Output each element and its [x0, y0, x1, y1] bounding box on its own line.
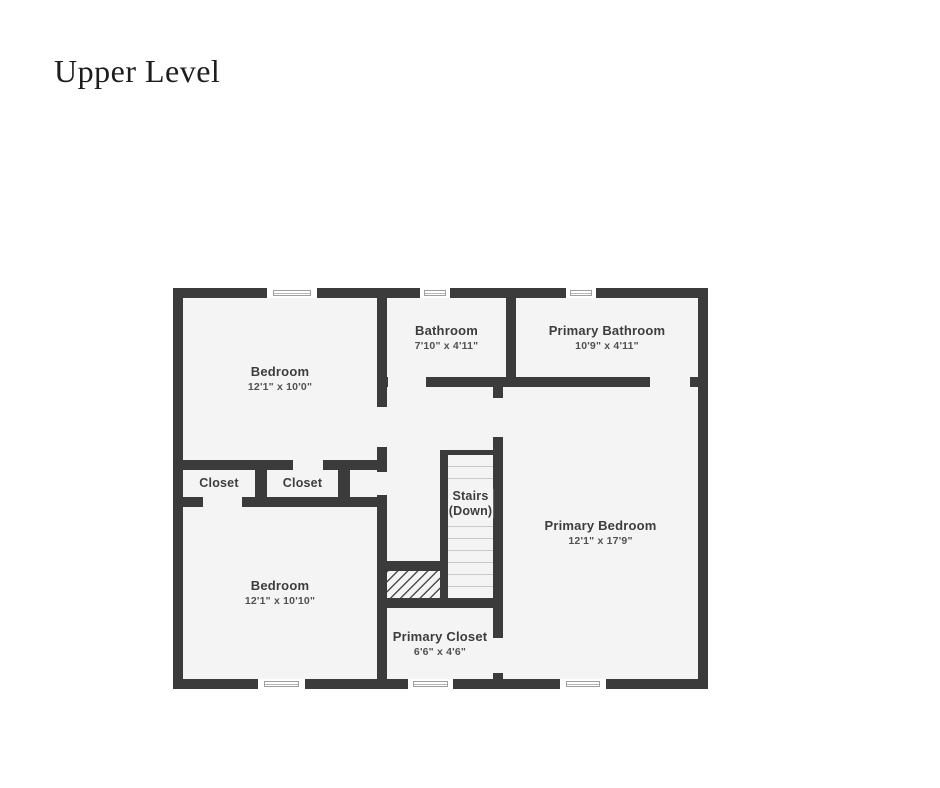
wall-outer-left — [173, 288, 183, 689]
room-label: Bedroom — [251, 364, 309, 379]
room-primary-bathroom: Primary Bathroom 10'9" x 4'11" — [516, 298, 698, 377]
under-stair-hatch — [387, 571, 440, 598]
wall-primary-closet-top — [377, 598, 503, 608]
stairs-label: Stairs (Down) — [448, 489, 494, 518]
window-top-bedroom — [267, 288, 317, 298]
room-label: Bedroom — [251, 578, 309, 593]
window-glass — [264, 681, 300, 687]
window-primary-bathroom — [566, 288, 596, 298]
room-dims: 12'1" x 17'9" — [568, 534, 632, 548]
window-bottom-bedroom — [258, 679, 305, 689]
room-label: Closet — [283, 476, 322, 491]
room-dims: 12'1" x 10'10" — [245, 594, 315, 608]
window-glass — [570, 290, 593, 296]
room-label: Stairs — [449, 489, 493, 504]
room-bedroom-bottom: Bedroom 12'1" x 10'10" — [183, 507, 377, 679]
room-dims: 7'10" x 4'11" — [415, 339, 479, 353]
wall-bedrooms-hall-lower — [377, 495, 387, 679]
page-title: Upper Level — [54, 53, 220, 90]
window-primary-closet — [408, 679, 453, 689]
wall-stairs-left — [440, 450, 448, 598]
wall-closet-top-right — [323, 460, 387, 470]
room-label: Closet — [199, 476, 238, 491]
wall-primary-closet-stub — [493, 673, 503, 679]
stairs-direction-label: (Down) — [449, 504, 493, 518]
room-closet-1: Closet — [183, 470, 255, 497]
room-label: Primary Bedroom — [544, 518, 656, 533]
window-glass — [424, 290, 447, 296]
wall-bedrooms-hall-upper — [377, 298, 387, 407]
room-label: Primary Closet — [393, 629, 488, 644]
window-glass — [413, 681, 447, 687]
room-label: Bathroom — [415, 323, 478, 338]
room-label: Primary Bathroom — [549, 323, 666, 338]
room-dims: 10'9" x 4'11" — [575, 339, 639, 353]
room-dims: 12'1" x 10'0" — [248, 380, 312, 394]
window-glass — [566, 681, 601, 687]
window-bathroom — [420, 288, 450, 298]
window-glass — [273, 290, 311, 296]
wall-hatch-top — [377, 561, 448, 571]
wall-bathroom-bottom-left — [377, 377, 388, 387]
wall-bathroom-bottom-mid — [426, 377, 650, 387]
room-primary-bedroom: Primary Bedroom 12'1" x 17'9" — [503, 387, 698, 679]
wall-bathroom-bottom-right — [690, 377, 708, 387]
room-bedroom-top: Bedroom 12'1" x 10'0" — [183, 298, 377, 460]
wall-bathroom-divider — [506, 298, 516, 377]
wall-closet-divider-1 — [255, 470, 267, 497]
window-primary-bedroom — [560, 679, 606, 689]
room-closet-2: Closet — [267, 470, 338, 497]
room-dims: 6'6" x 4'6" — [414, 645, 466, 659]
wall-closet-divider-2 — [338, 470, 350, 497]
wall-closet-bottom-left — [173, 497, 203, 507]
wall-closet-top-left — [173, 460, 293, 470]
wall-closet-bottom-right — [242, 497, 387, 507]
stairs-treads: Stairs (Down) — [448, 455, 493, 598]
wall-outer-right — [698, 288, 708, 689]
floor-plan: Stairs (Down) Bedroom 12'1" x — [173, 288, 708, 689]
wall-primary-bedroom-stub — [493, 387, 503, 398]
room-primary-closet: Primary Closet 6'6" x 4'6" — [387, 608, 493, 679]
room-bathroom: Bathroom 7'10" x 4'11" — [387, 298, 506, 377]
